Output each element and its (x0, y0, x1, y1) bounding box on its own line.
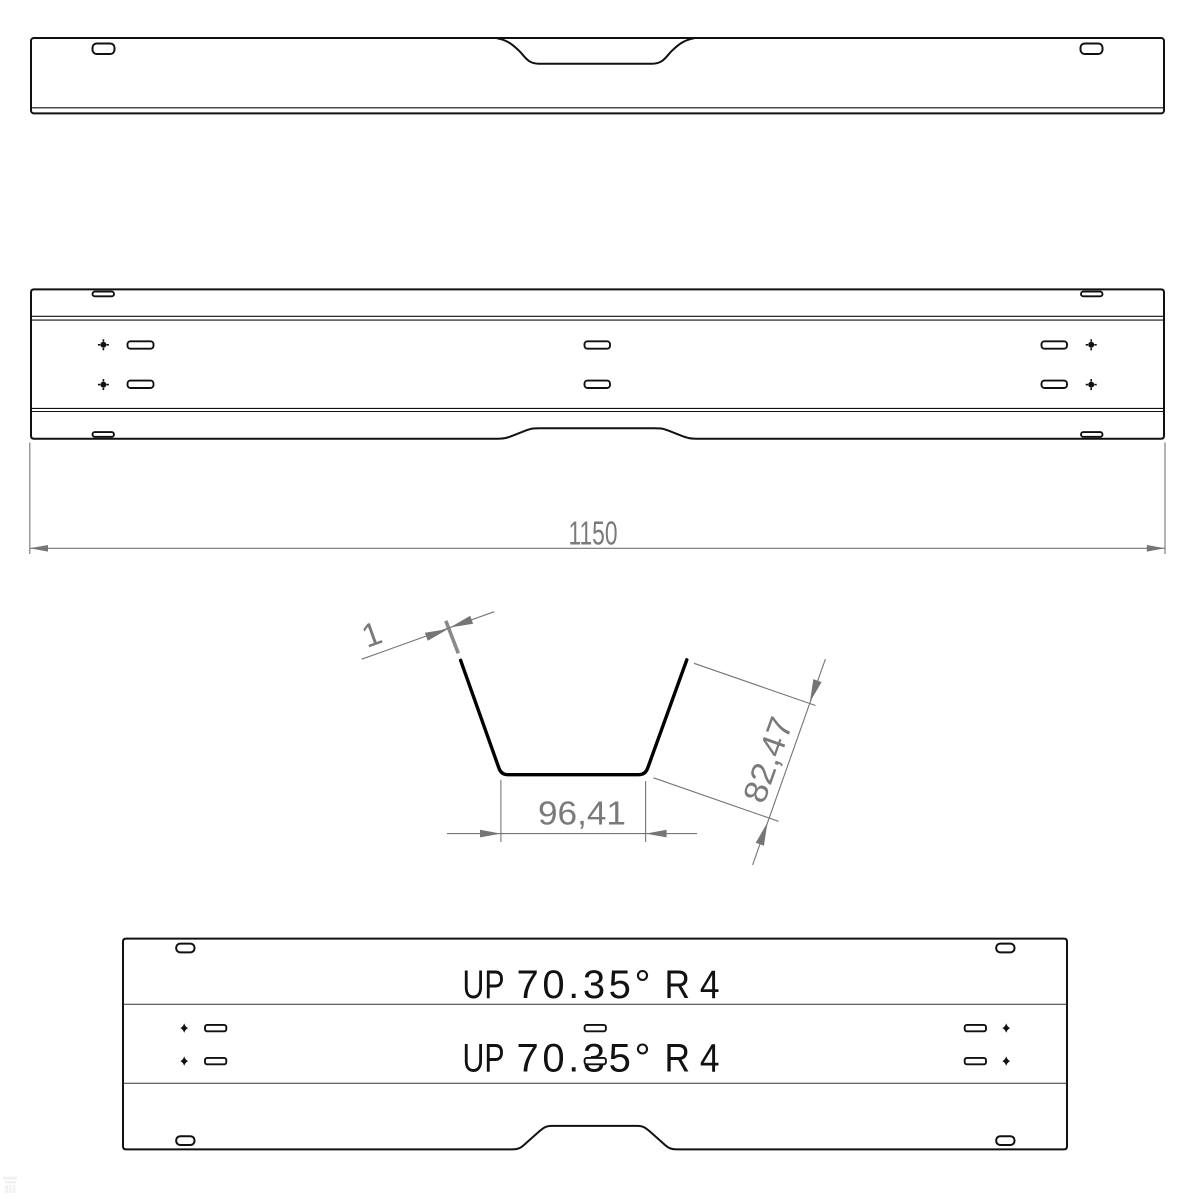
svg-text:1150: 1150 (569, 514, 618, 551)
svg-text:70.35°: 70.35° (517, 963, 651, 1007)
svg-text:UP: UP (463, 963, 505, 1007)
svg-text:R 4: R 4 (665, 1037, 720, 1081)
svg-text:UP: UP (463, 1037, 505, 1081)
svg-text:70.35°: 70.35° (517, 1037, 651, 1081)
svg-text:96,41: 96,41 (538, 794, 626, 831)
svg-text:R 4: R 4 (665, 963, 720, 1007)
